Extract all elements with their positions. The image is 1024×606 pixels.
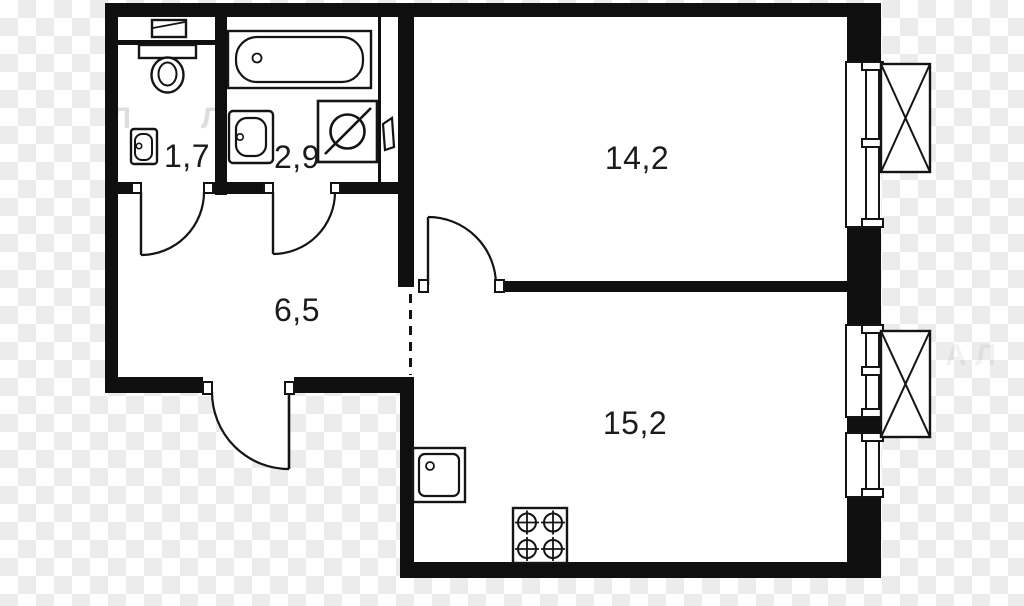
wall-wc-bath-partition [215, 17, 227, 195]
bath-sink-drain [237, 134, 243, 140]
kitchen-window-lower [846, 433, 883, 497]
ac-basket-living-room [881, 64, 930, 172]
bathtub-drain [253, 54, 262, 63]
wall-bath-bottom-3 [340, 182, 414, 194]
entrance-door [212, 392, 289, 469]
wall-hall-living [398, 17, 414, 287]
wall-right-2 [847, 227, 881, 325]
window-glazing [866, 433, 879, 497]
room-label-kitchen-living: 15,2 [603, 405, 667, 441]
kitchen-sink-basin [419, 454, 459, 496]
room-label-hallway: 6,5 [274, 292, 320, 328]
cooktop [513, 508, 567, 563]
towel-rail-shape [383, 118, 394, 150]
wc-sink [131, 129, 157, 164]
wall-bottom [400, 562, 881, 578]
toilet-tank [139, 45, 196, 58]
ac-basket-kitchen [881, 331, 930, 437]
wc-sink-drain [136, 143, 141, 148]
jamb [203, 382, 212, 394]
wall-left [105, 3, 118, 393]
watermark-right: А Л [945, 339, 996, 372]
wall-right-1 [847, 3, 881, 62]
jamb [419, 280, 428, 292]
window-sill [846, 433, 866, 497]
washing-machine [318, 101, 377, 162]
jamb [132, 183, 141, 193]
floorplan-svg: Л Л А Л [0, 0, 1024, 606]
living-room-window [846, 62, 883, 227]
kitchen-window-upper [846, 325, 883, 417]
watermark-fragment: А Л [945, 339, 996, 372]
wall-living-kitchen [504, 281, 847, 292]
kitchen-sink [413, 448, 465, 502]
wall-right-pier [847, 417, 881, 433]
jamb [264, 183, 273, 193]
bath-sink [229, 111, 273, 163]
heated-towel-rail [383, 118, 394, 150]
toilet-bowl-inner [159, 63, 177, 86]
wall-top [105, 3, 881, 17]
jamb [495, 280, 504, 292]
wall-duct-thin-line [378, 17, 381, 182]
jamb [331, 183, 340, 193]
wall-bath-bottom-2 [213, 182, 264, 194]
jamb [204, 183, 213, 193]
bathtub [228, 31, 371, 88]
room-label-bathroom: 2,9 [274, 139, 320, 175]
floorplan-canvas: Л Л А Л [0, 0, 1024, 606]
wall-bath-bottom-1 [105, 182, 132, 194]
jamb [285, 382, 294, 394]
room-label-living-room: 14,2 [605, 140, 669, 176]
room-label-wc: 1,7 [164, 138, 210, 174]
kitchen-sink-drain [426, 462, 434, 470]
window-tick [862, 219, 883, 227]
wall-right-3 [847, 497, 881, 578]
wall-hall-bottom-left [105, 377, 203, 393]
wall-hall-bottom-right [294, 377, 414, 393]
window-tick [862, 489, 883, 497]
